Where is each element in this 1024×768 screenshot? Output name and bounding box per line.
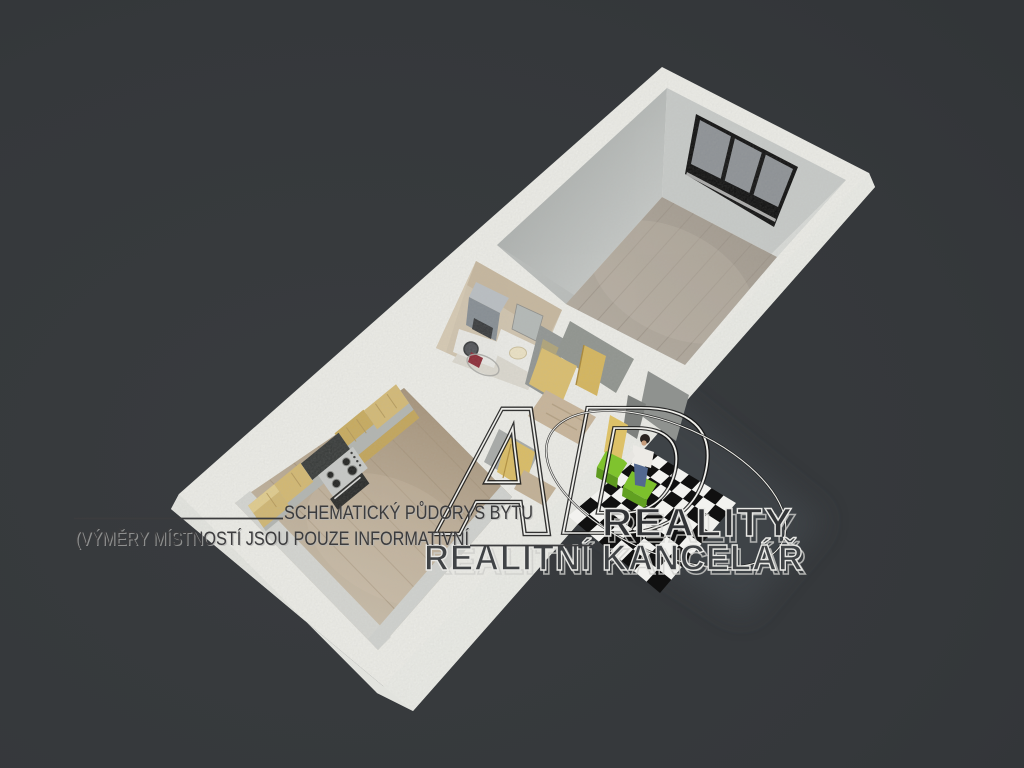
svg-text:SCHEMATICKÝ PŮDORYS BYTU: SCHEMATICKÝ PŮDORYS BYTU xyxy=(284,500,533,524)
svg-text:REALITNÍ KANCELÁŘ: REALITNÍ KANCELÁŘ xyxy=(424,536,804,578)
svg-text:(VÝMĚRY MÍSTNOSTÍ JSOU POUZE I: (VÝMĚRY MÍSTNOSTÍ JSOU POUZE INFORMATIVN… xyxy=(75,527,469,550)
